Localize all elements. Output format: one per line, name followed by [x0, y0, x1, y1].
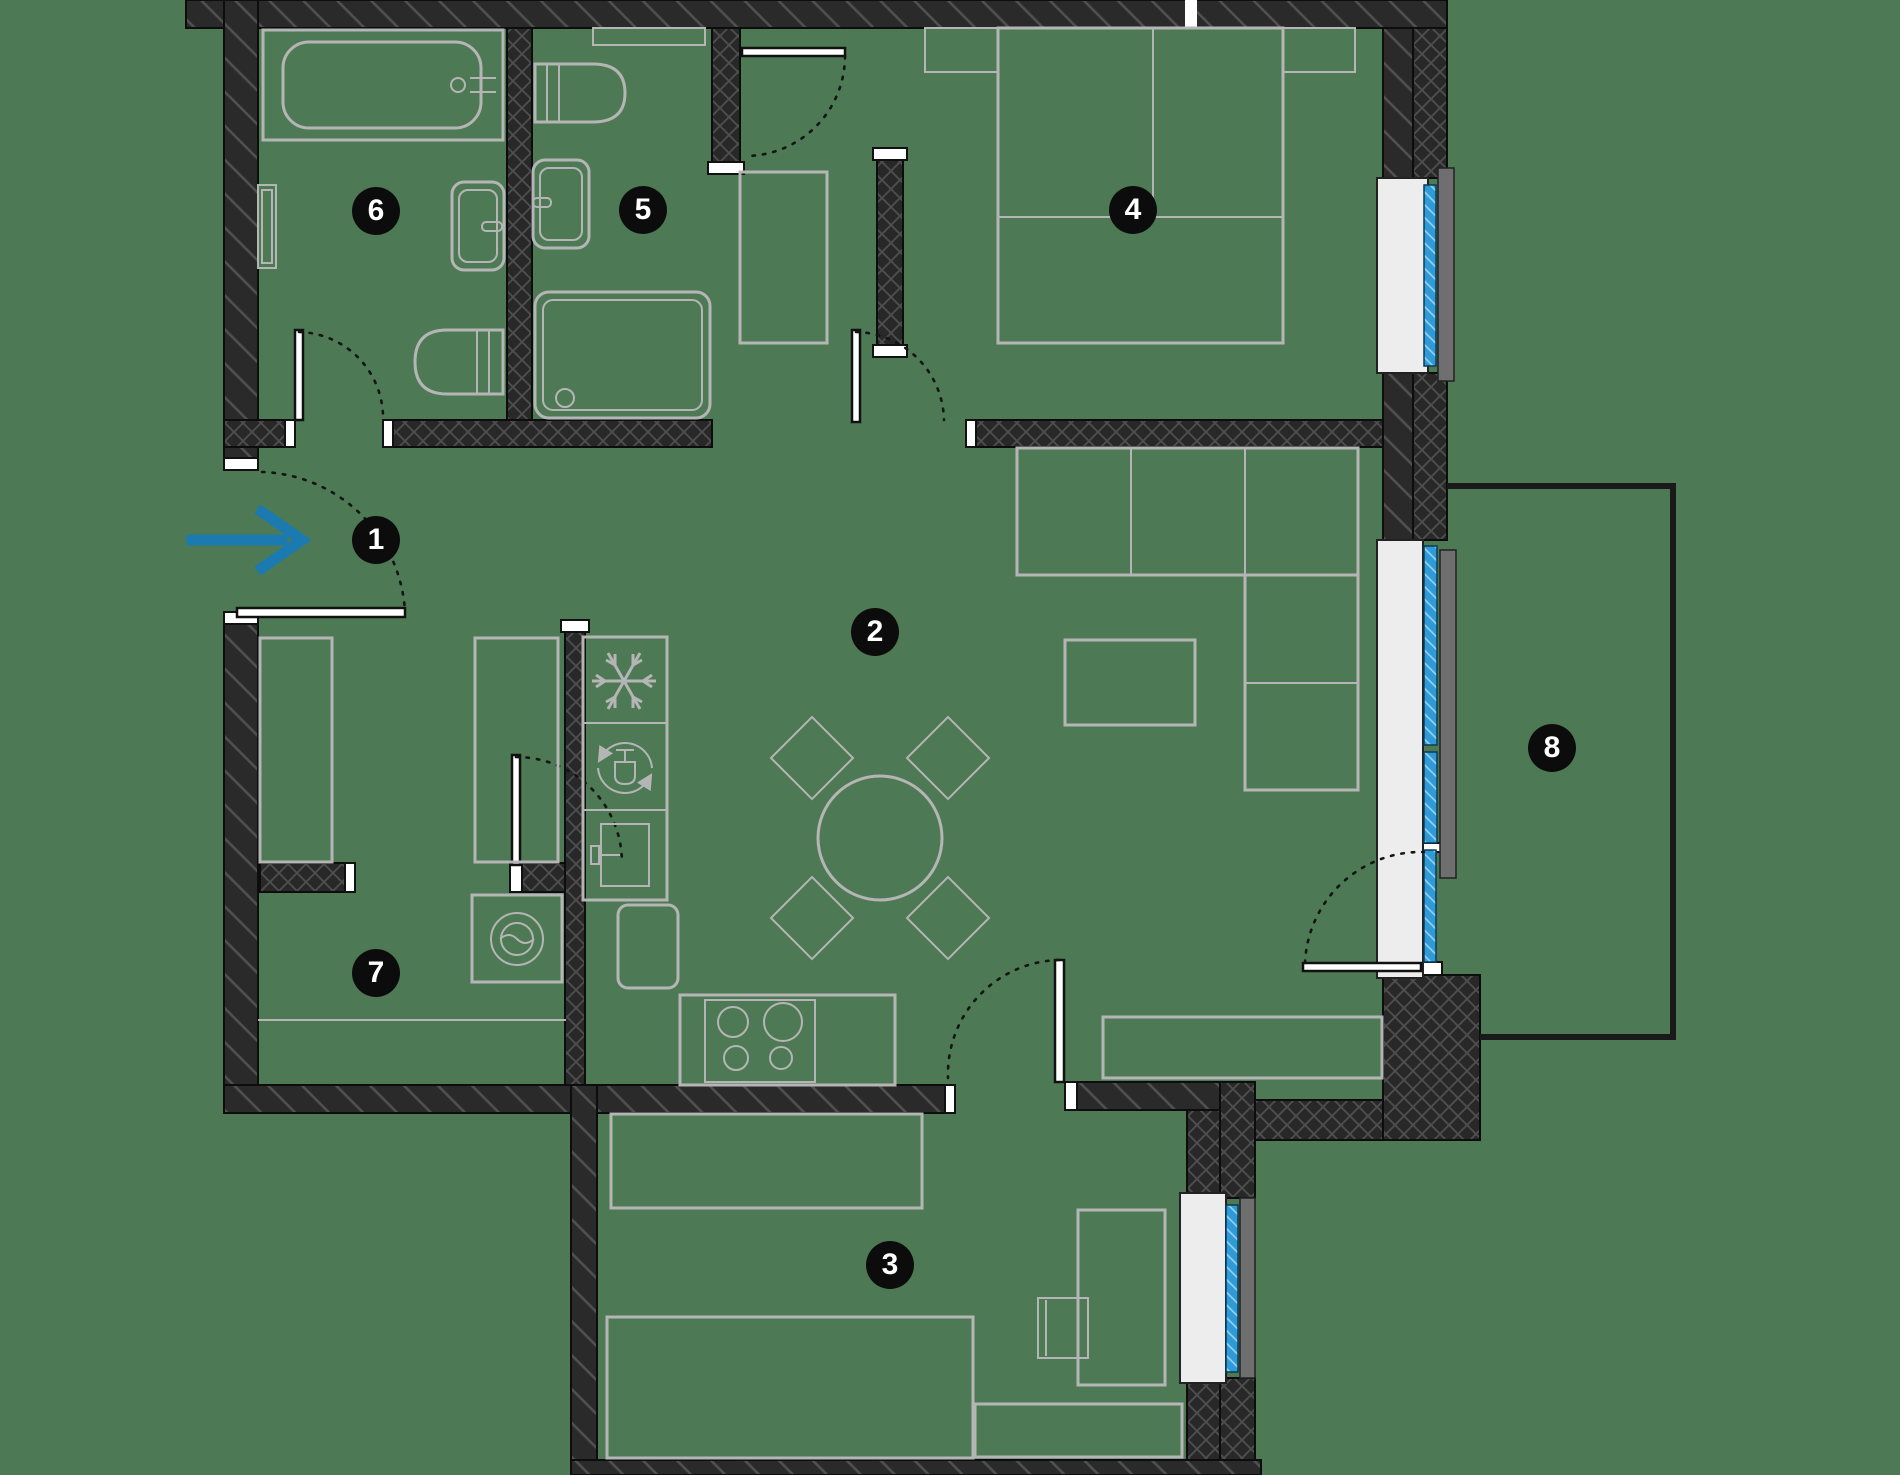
- wall-cap: [873, 345, 907, 357]
- wall-right-upper-outer: [1413, 28, 1447, 178]
- wall-left-lower: [224, 624, 258, 1085]
- room-badge-2: 2: [851, 608, 899, 656]
- wall-cap: [945, 1085, 955, 1113]
- towel-radiator-inner: [262, 190, 272, 263]
- double-bed: [998, 28, 1283, 343]
- washing-machine-wave: [500, 935, 534, 943]
- wardrobe: [260, 638, 332, 862]
- oven-icon: [591, 824, 649, 886]
- interior-partitions: [224, 28, 1442, 1113]
- room3-door-arc: [948, 960, 1059, 1078]
- freezer-snowflake-icon: [592, 653, 656, 709]
- partition-bath-south-right: [393, 420, 712, 447]
- wall-room3-bottom: [571, 1460, 1261, 1475]
- wall-room3-right-outer-b: [1220, 1378, 1255, 1460]
- window-glazing-bedroom4: [1424, 185, 1436, 366]
- window-ledge-living: [1440, 550, 1456, 878]
- wall-cap: [510, 863, 522, 892]
- living-room-furniture: [771, 448, 1382, 1078]
- coffee-table: [1065, 640, 1195, 725]
- wall-cap: [873, 148, 907, 160]
- balcony-door-glazing: [1424, 850, 1436, 962]
- dining-chair: [771, 717, 853, 799]
- window-ledge-room3: [1240, 1198, 1255, 1378]
- windows: [1180, 168, 1456, 1383]
- washbasin-bowl: [540, 168, 582, 240]
- room-badge-7: 7: [352, 949, 400, 997]
- nightstand: [925, 28, 998, 72]
- wall-room3-right-b: [1187, 1383, 1220, 1460]
- wardrobe: [611, 1114, 922, 1208]
- wall-corner-block: [1383, 975, 1480, 1140]
- partition-corridor-left: [712, 28, 740, 162]
- room-badge-5: 5: [619, 186, 667, 234]
- wall-cap: [966, 420, 976, 447]
- dishwasher-icon: [598, 743, 652, 793]
- bed: [607, 1317, 973, 1458]
- entrance-arrow-icon: [192, 512, 302, 568]
- hob-burner: [764, 1003, 802, 1041]
- wall-right-mid-inner: [1383, 373, 1413, 540]
- kitchen: [583, 637, 895, 1085]
- room-badge-4: 4: [1109, 186, 1157, 234]
- dining-chair: [907, 877, 989, 959]
- desk: [1078, 1210, 1165, 1385]
- flush-shelf: [593, 28, 705, 45]
- wall-right-mid-outer: [1413, 373, 1447, 540]
- wall-cap: [383, 420, 393, 447]
- floor-plan-drawing: [0, 0, 1900, 1475]
- bathroom6-door-leaf: [295, 330, 303, 420]
- partition-room7-top-right: [522, 863, 565, 892]
- shower-tray-inner: [543, 300, 702, 410]
- shower-tray: [535, 292, 710, 418]
- shower-drain: [556, 389, 574, 407]
- bathtub-drain: [451, 78, 465, 92]
- room3-door-leaf: [1055, 960, 1064, 1082]
- towel-radiator: [258, 185, 276, 268]
- bedroom4-door-leaf: [852, 330, 860, 422]
- window-glazing-living-b: [1424, 752, 1437, 843]
- wall-room3-right-outer-a: [1220, 1082, 1255, 1198]
- window-sill-room3: [1180, 1193, 1226, 1383]
- window-ledge-bedroom4: [1438, 168, 1454, 381]
- dining-table: [818, 776, 942, 900]
- wall-top: [186, 0, 1447, 28]
- window-glazing-living-a: [1424, 546, 1437, 745]
- corridor-wardrobe: [740, 172, 827, 343]
- room-badge-8: 8: [1528, 724, 1576, 772]
- wall-cap: [1065, 1082, 1077, 1110]
- wall-cap: [224, 458, 258, 470]
- sofa: [1017, 448, 1358, 575]
- partition-bedroom4-south: [976, 420, 1383, 447]
- bathroom5-fixtures: [533, 28, 710, 418]
- wall-room3-left: [571, 1085, 597, 1475]
- partition-bath-divider: [507, 28, 532, 420]
- room-badge-3: 3: [866, 1241, 914, 1289]
- wall-room3-right-a: [1187, 1110, 1220, 1193]
- room7-door-leaf: [512, 755, 520, 865]
- wall-top-joint: [1185, 0, 1197, 28]
- dresser: [975, 1404, 1182, 1457]
- window-sill-bedroom4: [1377, 178, 1428, 373]
- washbasin-tap: [533, 198, 551, 207]
- hob-burner: [770, 1047, 792, 1069]
- dining-chair: [771, 877, 853, 959]
- wall-bottom-left: [224, 1085, 597, 1113]
- corridor-door-arc: [745, 56, 845, 156]
- window-glazing-room3: [1226, 1205, 1238, 1372]
- entrance-door-leaf: [237, 608, 405, 617]
- corridor-door-leaf: [742, 48, 845, 56]
- bedroom4-furniture: [925, 28, 1355, 343]
- wall-left-upper: [224, 0, 258, 470]
- wall-cap: [561, 620, 589, 632]
- washbasin-bowl: [459, 190, 497, 262]
- floor-plan: 1 2 3 4 5 6 7 8: [0, 0, 1900, 1475]
- room-badge-1: 1: [352, 516, 400, 564]
- hob-burner: [724, 1046, 748, 1070]
- wall-right-upper-inner: [1383, 28, 1413, 178]
- window-sill-living: [1377, 540, 1423, 978]
- wall-kitchen-south: [597, 1085, 945, 1113]
- partition-room7-top-left: [260, 863, 353, 892]
- hob-burner: [718, 1007, 748, 1037]
- bathroom6-door-arc: [299, 332, 383, 420]
- room-badge-6: 6: [352, 187, 400, 235]
- tv-stand: [1103, 1017, 1382, 1078]
- toilet: [535, 64, 625, 122]
- wall-cap: [285, 420, 295, 447]
- partition-bath-south-left: [224, 420, 293, 447]
- partition-corridor-right: [877, 160, 903, 345]
- washbasin-tap: [482, 222, 502, 231]
- nightstand: [1283, 28, 1355, 72]
- kitchen-sink: [618, 905, 678, 988]
- balcony-door-leaf: [1303, 963, 1421, 971]
- wall-cap: [345, 863, 355, 892]
- dining-chair: [907, 717, 989, 799]
